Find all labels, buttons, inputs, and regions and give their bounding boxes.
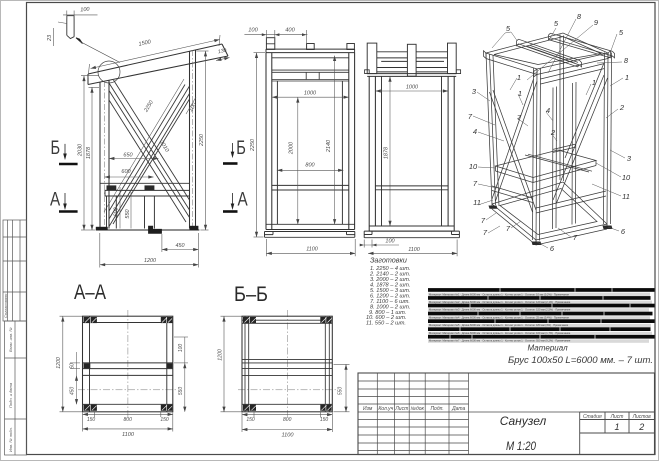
svg-text:100: 100 (178, 344, 184, 353)
svg-text:550: 550 (125, 208, 131, 218)
svg-text:150: 150 (246, 417, 255, 423)
svg-text:1: 1 (517, 73, 521, 82)
svg-text:100: 100 (385, 239, 395, 245)
svg-text:Кол.уч: Кол.уч (378, 406, 393, 412)
svg-text:11. 550 – 2 шт.: 11. 550 – 2 шт. (366, 321, 406, 327)
svg-text:Изм: Изм (363, 406, 373, 412)
svg-text:600: 600 (121, 169, 131, 175)
svg-text:2250: 2250 (250, 139, 256, 152)
svg-text:11: 11 (473, 198, 481, 207)
svg-text:800: 800 (283, 417, 292, 423)
svg-text:Брус 100х50 L=6000 мм. – 7 шт.: Брус 100х50 L=6000 мм. – 7 шт. (508, 355, 653, 365)
svg-text:150: 150 (320, 417, 329, 423)
svg-text:1100: 1100 (306, 247, 318, 253)
svg-text:Материал: Материал №4 · Длина: Материал: Материал №4 · Длина 6000 мм · … (429, 316, 569, 320)
svg-text:Материал: Материал (528, 344, 569, 353)
svg-text:2: 2 (619, 103, 625, 112)
svg-text:1878: 1878 (384, 146, 390, 159)
svg-text:Подп. и дата: Подп. и дата (8, 382, 13, 408)
svg-text:23: 23 (47, 34, 53, 42)
svg-text:1000: 1000 (304, 91, 317, 97)
svg-text:Материал: Материал №3 · Длина: Материал: Материал №3 · Длина 6000 мм · … (429, 308, 571, 312)
svg-text:1100: 1100 (122, 432, 135, 438)
svg-text:100: 100 (80, 7, 91, 14)
svg-text:Заготовки: Заготовки (370, 256, 407, 265)
svg-text:Лист: Лист (610, 414, 624, 420)
svg-text:150: 150 (160, 417, 169, 423)
svg-text:Материал: Материал №1 · Длина: Материал: Материал №1 · Длина 6000 мм · … (429, 292, 569, 296)
svg-text:2030: 2030 (78, 143, 84, 157)
svg-text:10: 10 (469, 162, 478, 171)
svg-text:1: 1 (518, 89, 522, 98)
svg-text:150: 150 (87, 417, 96, 423)
svg-text:Дата: Дата (451, 406, 465, 412)
svg-text:Б: Б (236, 138, 246, 159)
svg-text:1878: 1878 (86, 146, 92, 159)
svg-text:Материал: Материал №2 · Длина: Материал: Материал №2 · Длина 6000 мм · … (429, 300, 571, 304)
svg-text:4: 4 (546, 106, 550, 115)
svg-text:600: 600 (114, 206, 120, 216)
svg-text:Листов: Листов (632, 414, 652, 420)
svg-text:800: 800 (305, 163, 315, 169)
svg-text:2: 2 (638, 422, 644, 432)
svg-text:1: 1 (625, 73, 629, 82)
svg-text:Подп.: Подп. (430, 406, 443, 412)
svg-text:1200: 1200 (144, 258, 156, 264)
svg-text:Санузел: Санузел (500, 414, 547, 428)
svg-text:Б: Б (51, 138, 61, 159)
svg-text:1200: 1200 (56, 357, 62, 369)
svg-text:2140: 2140 (326, 139, 332, 153)
svg-text:2000: 2000 (289, 141, 295, 155)
svg-text:50: 50 (70, 363, 76, 369)
svg-text:550: 550 (338, 387, 344, 396)
svg-text:А: А (238, 190, 248, 211)
svg-text:450: 450 (70, 387, 76, 396)
svg-text:1000: 1000 (406, 85, 419, 91)
svg-text:Стадия: Стадия (583, 414, 602, 420)
svg-text:800: 800 (124, 417, 133, 423)
svg-text:№док: №док (411, 406, 425, 412)
svg-text:550: 550 (178, 387, 184, 396)
svg-text:650: 650 (123, 153, 133, 159)
svg-text:1200: 1200 (218, 349, 224, 361)
svg-text:Б–Б: Б–Б (234, 283, 268, 306)
svg-text:400: 400 (285, 28, 295, 34)
svg-text:1100: 1100 (408, 247, 420, 253)
svg-text:11: 11 (622, 192, 630, 201)
svg-text:10: 10 (622, 173, 631, 182)
svg-text:М 1:20: М 1:20 (506, 439, 536, 453)
svg-text:100: 100 (248, 28, 258, 34)
svg-text:4: 4 (473, 127, 477, 136)
svg-text:Инв. № подл.: Инв. № подл. (8, 427, 13, 452)
svg-text:1: 1 (614, 422, 619, 432)
svg-text:Согласовано: Согласовано (3, 293, 8, 318)
svg-text:1100: 1100 (281, 432, 294, 438)
svg-text:Материал: Материал №7 · Длина: Материал: Материал №7 · Длина 6000 мм · … (429, 339, 571, 343)
svg-text:1: 1 (592, 78, 596, 87)
svg-text:Лист: Лист (394, 406, 408, 412)
svg-text:Материал: Материал №6 · Длина: Материал: Материал №6 · Длина 6000 мм · … (429, 331, 571, 335)
svg-text:2250: 2250 (199, 134, 205, 147)
svg-text:Материал: Материал №5 · Длина: Материал: Материал №5 · Длина 6000 мм · … (429, 323, 569, 327)
svg-text:450: 450 (176, 243, 185, 249)
svg-text:А: А (50, 190, 60, 211)
svg-text:Взам. инв. №: Взам. инв. № (8, 327, 13, 352)
svg-text:А–А: А–А (74, 281, 106, 304)
